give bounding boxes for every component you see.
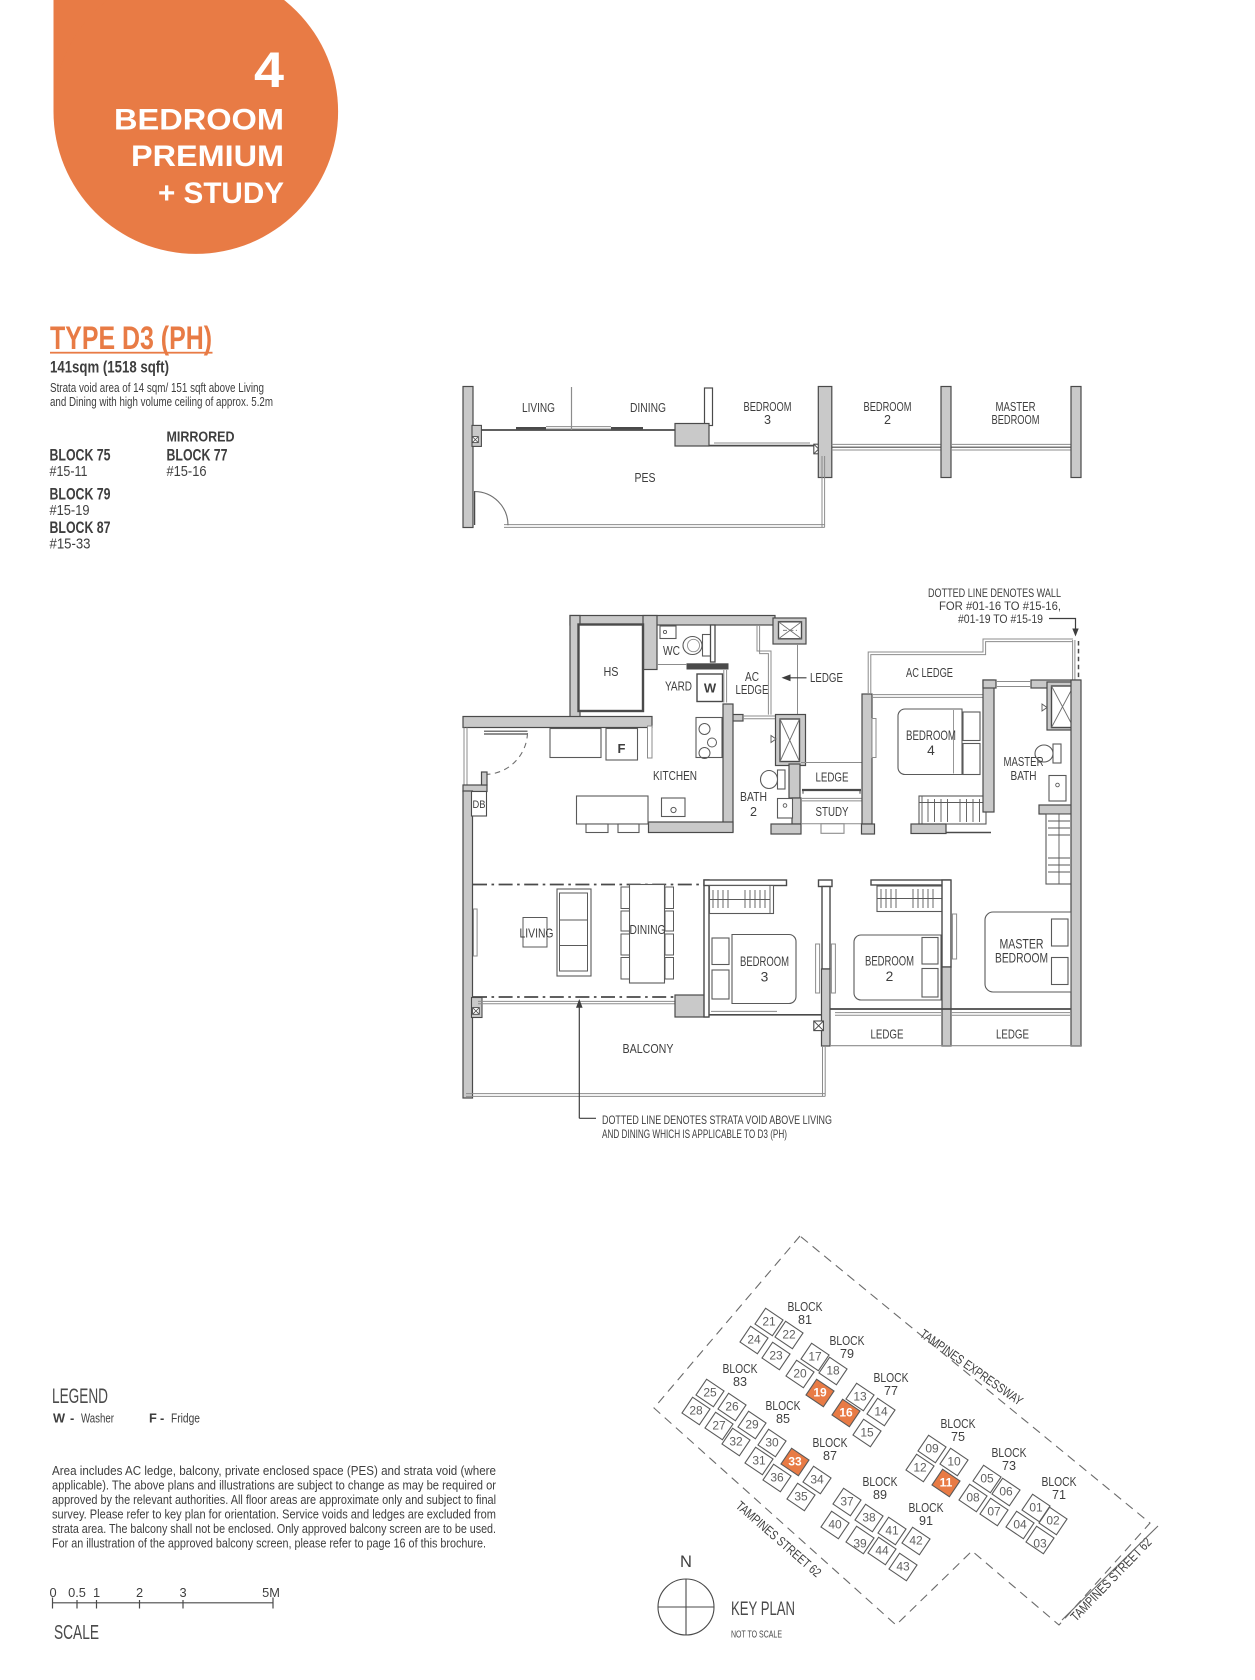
svg-text:BLOCK 87: BLOCK 87 xyxy=(50,519,111,537)
svg-text:PREMIUM: PREMIUM xyxy=(131,140,284,173)
svg-text:01: 01 xyxy=(1029,1501,1043,1515)
svg-text:32: 32 xyxy=(729,1435,743,1449)
svg-text:5M: 5M xyxy=(262,1585,280,1600)
svg-text:11: 11 xyxy=(940,1476,953,1490)
svg-text:+ STUDY: + STUDY xyxy=(158,177,284,210)
svg-text:07: 07 xyxy=(987,1505,1001,1519)
svg-text:13: 13 xyxy=(853,1390,867,1404)
svg-text:25: 25 xyxy=(703,1386,717,1400)
svg-text:BATH: BATH xyxy=(740,790,767,804)
svg-text:22: 22 xyxy=(782,1328,796,1342)
svg-text:LIVING: LIVING xyxy=(520,927,554,941)
svg-text:31: 31 xyxy=(752,1454,766,1468)
svg-text:SCALE: SCALE xyxy=(54,1622,99,1644)
svg-text:BALCONY: BALCONY xyxy=(623,1042,674,1056)
svg-text:91: 91 xyxy=(919,1514,933,1528)
svg-text:survey. Please refer to key pl: survey. Please refer to key plan for ori… xyxy=(52,1507,496,1522)
svg-text:MASTER: MASTER xyxy=(1000,937,1044,952)
svg-text:YARD: YARD xyxy=(665,680,692,694)
svg-text:LEDGE: LEDGE xyxy=(816,771,849,785)
svg-text:40: 40 xyxy=(828,1518,842,1532)
svg-text:LEGEND: LEGEND xyxy=(52,1385,108,1408)
svg-text:4: 4 xyxy=(254,42,284,98)
svg-text:04: 04 xyxy=(1013,1518,1027,1532)
svg-text:19: 19 xyxy=(813,1386,827,1400)
svg-text:141sqm (1518 sqft): 141sqm (1518 sqft) xyxy=(50,359,169,377)
svg-text:77: 77 xyxy=(884,1384,898,1398)
svg-text:LIVING: LIVING xyxy=(522,401,555,415)
svg-text:-: - xyxy=(160,1411,164,1426)
svg-text:HS: HS xyxy=(604,665,619,679)
svg-text:NOT TO SCALE: NOT TO SCALE xyxy=(731,1630,782,1641)
svg-text:BEDROOM: BEDROOM xyxy=(744,400,792,414)
svg-text:09: 09 xyxy=(925,1442,939,1456)
svg-text:30: 30 xyxy=(765,1436,779,1450)
svg-text:83: 83 xyxy=(733,1375,747,1389)
svg-text:#15-33: #15-33 xyxy=(50,537,91,553)
svg-text:MASTER: MASTER xyxy=(996,400,1036,414)
svg-text:38: 38 xyxy=(862,1511,876,1525)
svg-text:3: 3 xyxy=(764,413,771,427)
svg-text:03: 03 xyxy=(1033,1537,1047,1551)
svg-text:26: 26 xyxy=(725,1400,739,1414)
svg-text:BEDROOM: BEDROOM xyxy=(114,104,284,137)
svg-text:21: 21 xyxy=(762,1315,776,1329)
svg-text:Area includes AC ledge, balcon: Area includes AC ledge, balcony, private… xyxy=(52,1463,496,1478)
svg-text:BLOCK: BLOCK xyxy=(1042,1475,1077,1489)
svg-text:PES: PES xyxy=(635,471,656,485)
svg-text:BEDROOM: BEDROOM xyxy=(906,728,956,743)
svg-text:79: 79 xyxy=(840,1347,854,1361)
svg-text:15: 15 xyxy=(860,1426,874,1440)
svg-text:3: 3 xyxy=(179,1585,186,1600)
svg-text:20: 20 xyxy=(793,1367,807,1381)
svg-text:KITCHEN: KITCHEN xyxy=(653,769,697,783)
svg-text:LEDGE: LEDGE xyxy=(871,1028,904,1042)
svg-text:DINING: DINING xyxy=(630,923,666,937)
svg-text:BLOCK 79: BLOCK 79 xyxy=(50,486,111,504)
svg-text:DINING: DINING xyxy=(630,401,666,415)
svg-text:BLOCK: BLOCK xyxy=(992,1446,1027,1460)
svg-text:BLOCK: BLOCK xyxy=(941,1417,976,1431)
svg-text:35: 35 xyxy=(794,1490,808,1504)
svg-text:44: 44 xyxy=(875,1544,889,1558)
svg-text:AC: AC xyxy=(745,670,759,684)
svg-text:LEDGE: LEDGE xyxy=(996,1028,1029,1042)
svg-text:34: 34 xyxy=(810,1473,824,1487)
svg-text:37: 37 xyxy=(840,1495,854,1509)
svg-text:18: 18 xyxy=(826,1364,840,1378)
svg-text:BEDROOM: BEDROOM xyxy=(864,400,912,414)
svg-text:WC: WC xyxy=(663,644,680,658)
svg-text:81: 81 xyxy=(798,1313,812,1327)
svg-text:BLOCK 75: BLOCK 75 xyxy=(50,447,111,465)
svg-text:For an illustration of the app: For an illustration of the approved balc… xyxy=(52,1536,486,1551)
svg-text:STUDY: STUDY xyxy=(816,805,849,819)
svg-text:FOR #01-16 TO #15-16,: FOR #01-16 TO #15-16, xyxy=(939,599,1061,613)
svg-text:17: 17 xyxy=(808,1350,822,1364)
svg-text:27: 27 xyxy=(712,1419,726,1433)
svg-text:LEDGE: LEDGE xyxy=(810,671,843,685)
svg-text:DOTTED LINE DENOTES STRATA VOI: DOTTED LINE DENOTES STRATA VOID ABOVE LI… xyxy=(602,1113,832,1127)
svg-text:and Dining with high volume ce: and Dining with high volume ceiling of a… xyxy=(50,394,273,409)
svg-text:BLOCK: BLOCK xyxy=(723,1362,758,1376)
svg-text:#01-19 TO #15-19: #01-19 TO #15-19 xyxy=(958,612,1043,626)
svg-text:87: 87 xyxy=(823,1449,837,1463)
svg-text:42: 42 xyxy=(909,1534,923,1548)
svg-text:BLOCK: BLOCK xyxy=(766,1399,801,1413)
svg-text:KEY PLAN: KEY PLAN xyxy=(731,1599,795,1620)
svg-text:41: 41 xyxy=(885,1524,899,1538)
svg-text:85: 85 xyxy=(776,1412,790,1426)
svg-text:08: 08 xyxy=(966,1491,980,1505)
svg-text:89: 89 xyxy=(873,1488,887,1502)
svg-text:1: 1 xyxy=(93,1585,100,1600)
svg-text:2: 2 xyxy=(136,1585,143,1600)
svg-text:2: 2 xyxy=(750,805,757,819)
svg-text:BEDROOM: BEDROOM xyxy=(740,954,789,969)
svg-text:71: 71 xyxy=(1052,1488,1066,1502)
svg-text:-: - xyxy=(70,1411,74,1426)
svg-text:BEDROOM: BEDROOM xyxy=(992,413,1040,427)
svg-text:TYPE D3 (PH): TYPE D3 (PH) xyxy=(50,320,212,356)
svg-text:2: 2 xyxy=(884,413,891,427)
svg-text:applicable). The above plans a: applicable). The above plans and illustr… xyxy=(52,1478,497,1493)
svg-text:Washer: Washer xyxy=(81,1411,115,1426)
svg-text:43: 43 xyxy=(896,1560,910,1574)
svg-text:W: W xyxy=(53,1411,66,1426)
svg-text:12: 12 xyxy=(913,1461,927,1475)
svg-text:AC LEDGE: AC LEDGE xyxy=(906,666,953,680)
svg-text:LEDGE: LEDGE xyxy=(736,683,769,697)
svg-text:36: 36 xyxy=(770,1471,784,1485)
svg-text:29: 29 xyxy=(745,1418,759,1432)
svg-text:16: 16 xyxy=(839,1406,853,1420)
svg-text:AND DINING WHICH IS APPLICABLE: AND DINING WHICH IS APPLICABLE TO D3 (PH… xyxy=(602,1127,787,1141)
svg-text:BLOCK: BLOCK xyxy=(813,1436,848,1450)
svg-text:75: 75 xyxy=(951,1430,965,1444)
svg-text:Strata void area of 14 sqm/ 15: Strata void area of 14 sqm/ 151 sqft abo… xyxy=(50,380,264,395)
svg-text:N: N xyxy=(680,1553,692,1571)
svg-text:#15-19: #15-19 xyxy=(50,503,90,519)
svg-text:BEDROOM: BEDROOM xyxy=(995,951,1048,966)
svg-text:Fridge: Fridge xyxy=(171,1411,200,1426)
svg-text:2: 2 xyxy=(886,969,894,984)
svg-text:28: 28 xyxy=(689,1404,703,1418)
svg-text:MIRRORED: MIRRORED xyxy=(167,430,235,446)
svg-text:BLOCK 77: BLOCK 77 xyxy=(167,447,228,465)
svg-text:BLOCK: BLOCK xyxy=(874,1371,909,1385)
svg-text:BLOCK: BLOCK xyxy=(830,1334,865,1348)
svg-text:23: 23 xyxy=(769,1349,783,1363)
svg-text:DB: DB xyxy=(473,799,486,811)
svg-text:MASTER: MASTER xyxy=(1004,755,1044,769)
svg-text:05: 05 xyxy=(980,1472,994,1486)
svg-text:02: 02 xyxy=(1046,1514,1060,1528)
svg-text:3: 3 xyxy=(761,970,769,985)
svg-text:DOTTED LINE DENOTES WALL: DOTTED LINE DENOTES WALL xyxy=(928,586,1061,600)
svg-text:BLOCK: BLOCK xyxy=(788,1300,823,1314)
svg-text:#15-11: #15-11 xyxy=(50,464,88,480)
svg-text:W: W xyxy=(704,681,717,696)
svg-text:BEDROOM: BEDROOM xyxy=(865,954,914,969)
svg-text:#15-16: #15-16 xyxy=(167,464,207,480)
svg-text:73: 73 xyxy=(1002,1459,1016,1473)
svg-text:approved by the relevant autho: approved by the relevant authorities. Al… xyxy=(52,1492,496,1507)
svg-text:33: 33 xyxy=(788,1455,802,1469)
svg-text:0.5: 0.5 xyxy=(68,1585,86,1600)
svg-text:BATH: BATH xyxy=(1011,769,1037,783)
svg-text:10: 10 xyxy=(947,1455,961,1469)
svg-text:strata area. The balcony shall: strata area. The balcony shall not be en… xyxy=(52,1521,496,1536)
svg-text:F: F xyxy=(618,741,626,756)
svg-text:39: 39 xyxy=(853,1537,867,1551)
svg-text:BLOCK: BLOCK xyxy=(863,1475,898,1489)
svg-text:BLOCK: BLOCK xyxy=(909,1501,944,1515)
svg-text:06: 06 xyxy=(999,1485,1013,1499)
svg-text:24: 24 xyxy=(747,1333,761,1347)
svg-text:F: F xyxy=(149,1411,157,1426)
svg-text:14: 14 xyxy=(874,1405,888,1419)
svg-text:4: 4 xyxy=(927,743,935,758)
